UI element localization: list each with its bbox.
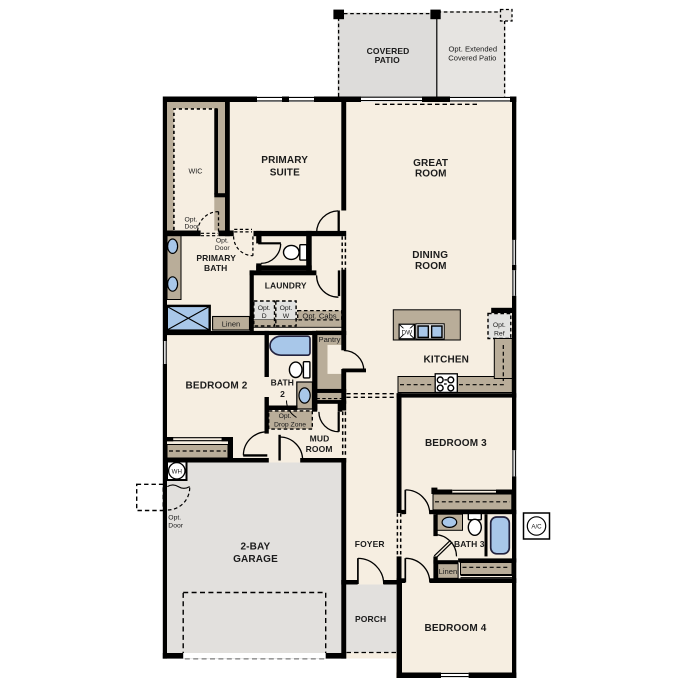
- svg-text:Linen: Linen: [222, 319, 241, 328]
- svg-text:MUD: MUD: [310, 434, 330, 444]
- svg-text:BATH: BATH: [204, 263, 227, 273]
- svg-text:Opt.: Opt.: [185, 216, 198, 223]
- svg-text:BATH 3: BATH 3: [454, 539, 485, 549]
- svg-text:2: 2: [280, 389, 285, 399]
- svg-text:D: D: [262, 313, 267, 320]
- svg-text:BEDROOM 3: BEDROOM 3: [425, 438, 487, 449]
- svg-text:ROOM: ROOM: [415, 261, 447, 272]
- svg-text:Opt.: Opt.: [493, 322, 506, 329]
- svg-text:Door: Door: [185, 224, 200, 231]
- svg-text:Opt.: Opt.: [168, 514, 181, 521]
- svg-text:FOYER: FOYER: [355, 539, 385, 549]
- svg-text:LAUNDRY: LAUNDRY: [265, 281, 307, 291]
- svg-text:PRIMARY: PRIMARY: [261, 155, 308, 166]
- svg-text:A/C: A/C: [531, 523, 542, 530]
- svg-text:Opt.: Opt.: [258, 305, 271, 312]
- svg-text:WH: WH: [172, 468, 182, 475]
- svg-text:SUITE: SUITE: [270, 168, 300, 179]
- svg-text:Ref: Ref: [494, 330, 505, 337]
- svg-text:Opt.: Opt.: [216, 237, 229, 244]
- svg-text:Drop Zone: Drop Zone: [274, 421, 306, 428]
- svg-text:WIC: WIC: [189, 167, 203, 176]
- svg-text:PORCH: PORCH: [355, 614, 386, 624]
- svg-text:Door: Door: [215, 245, 230, 252]
- svg-text:Pantry: Pantry: [319, 335, 341, 344]
- svg-text:DW: DW: [401, 330, 413, 337]
- svg-text:BEDROOM 4: BEDROOM 4: [425, 623, 487, 634]
- svg-text:PATIO: PATIO: [375, 55, 400, 65]
- svg-text:Opt.: Opt.: [280, 305, 293, 312]
- svg-text:BATH: BATH: [271, 378, 294, 388]
- svg-text:Covered Patio: Covered Patio: [448, 54, 496, 63]
- svg-text:KITCHEN: KITCHEN: [424, 354, 470, 365]
- svg-text:2-BAY: 2-BAY: [240, 542, 270, 553]
- svg-text:GARAGE: GARAGE: [233, 554, 278, 565]
- svg-text:W: W: [283, 313, 290, 320]
- svg-text:Opt. Extended: Opt. Extended: [449, 45, 498, 54]
- svg-text:Opt.: Opt.: [279, 413, 292, 420]
- svg-text:ROOM: ROOM: [415, 169, 447, 180]
- svg-text:ROOM: ROOM: [306, 444, 333, 454]
- svg-text:GREAT: GREAT: [413, 158, 448, 169]
- svg-text:BEDROOM 2: BEDROOM 2: [186, 380, 248, 391]
- svg-text:Opt. Cabs: Opt. Cabs: [302, 311, 336, 320]
- svg-text:PRIMARY: PRIMARY: [196, 253, 236, 263]
- svg-text:DINING: DINING: [412, 250, 448, 261]
- svg-text:Linen: Linen: [439, 567, 458, 576]
- svg-text:Door: Door: [168, 522, 183, 529]
